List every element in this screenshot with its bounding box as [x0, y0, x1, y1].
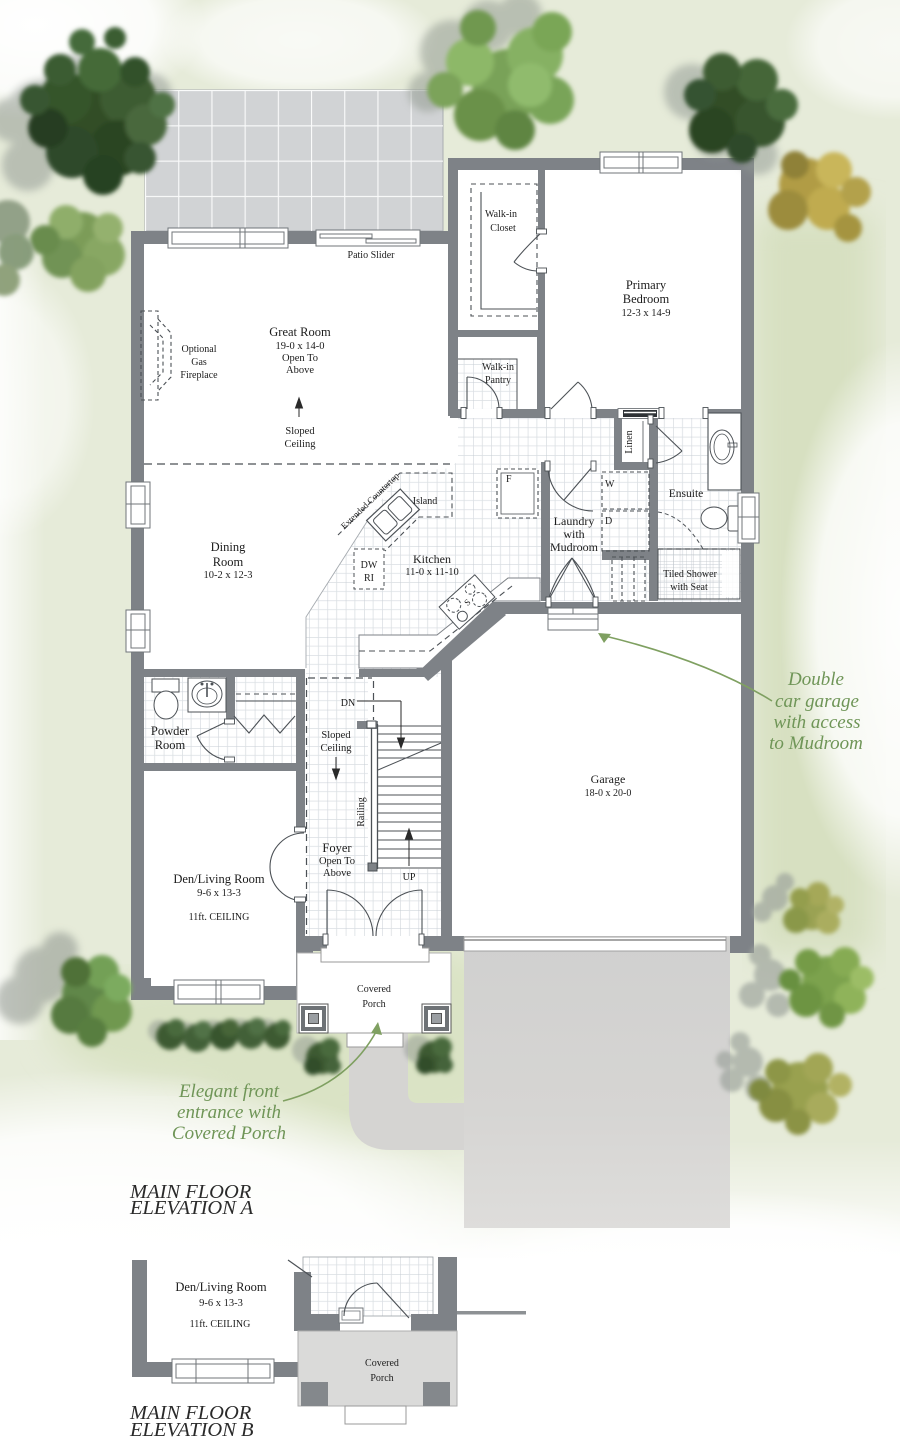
svg-text:11ft. CEILING: 11ft. CEILING: [190, 1319, 251, 1330]
svg-text:Ceiling: Ceiling: [285, 439, 317, 450]
svg-text:Railing: Railing: [356, 797, 367, 826]
svg-text:Walk-in: Walk-in: [485, 209, 517, 220]
svg-text:Den/Living Room: Den/Living Room: [173, 872, 265, 886]
svg-text:entrance with: entrance with: [177, 1102, 281, 1123]
svg-text:Room: Room: [155, 738, 186, 752]
svg-text:Powder: Powder: [151, 724, 190, 738]
svg-text:UP: UP: [403, 872, 416, 883]
svg-text:Sloped: Sloped: [321, 730, 351, 741]
svg-text:F: F: [506, 474, 512, 485]
svg-text:Ceiling: Ceiling: [321, 743, 353, 754]
svg-text:with access: with access: [773, 712, 860, 733]
svg-text:Dining: Dining: [211, 540, 246, 554]
svg-text:to Mudroom: to Mudroom: [769, 733, 863, 754]
svg-text:Mudroom: Mudroom: [550, 540, 599, 554]
svg-text:DW: DW: [361, 560, 378, 571]
svg-text:Fireplace: Fireplace: [180, 370, 218, 381]
svg-text:Above: Above: [323, 868, 351, 879]
svg-text:Den/Living Room: Den/Living Room: [175, 1280, 267, 1294]
svg-text:Above: Above: [286, 365, 314, 376]
svg-text:Patio Slider: Patio Slider: [348, 250, 396, 261]
svg-text:Primary: Primary: [626, 278, 667, 292]
svg-text:car garage: car garage: [775, 691, 859, 712]
svg-text:9-6 x 13-3: 9-6 x 13-3: [197, 888, 241, 899]
svg-text:Laundry: Laundry: [554, 514, 595, 528]
svg-text:Kitchen: Kitchen: [413, 552, 451, 566]
svg-text:with: with: [563, 527, 584, 541]
svg-text:Island: Island: [413, 496, 437, 507]
svg-text:Closet: Closet: [490, 223, 516, 234]
svg-text:Tiled Shower: Tiled Shower: [663, 569, 717, 580]
svg-text:Porch: Porch: [362, 999, 385, 1010]
svg-text:10-2 x 12-3: 10-2 x 12-3: [204, 570, 253, 581]
svg-text:Gas: Gas: [191, 357, 207, 368]
svg-text:9-6 x 13-3: 9-6 x 13-3: [199, 1298, 243, 1309]
svg-text:Bedroom: Bedroom: [623, 292, 670, 306]
svg-text:11ft. CEILING: 11ft. CEILING: [189, 912, 250, 923]
svg-text:Covered Porch: Covered Porch: [172, 1123, 286, 1144]
svg-text:Room: Room: [213, 555, 244, 569]
svg-text:12-3 x 14-9: 12-3 x 14-9: [622, 308, 671, 319]
svg-text:ELEVATION A: ELEVATION A: [129, 1197, 254, 1219]
svg-text:Walk-in: Walk-in: [482, 362, 514, 373]
svg-text:Open To: Open To: [282, 353, 318, 364]
svg-text:Garage: Garage: [591, 772, 626, 786]
svg-text:Foyer: Foyer: [322, 841, 352, 855]
svg-text:Linen: Linen: [624, 430, 635, 453]
svg-text:Great Room: Great Room: [269, 325, 331, 339]
svg-text:Covered: Covered: [357, 984, 391, 995]
svg-text:Pantry: Pantry: [485, 375, 511, 386]
svg-text:D: D: [605, 516, 612, 527]
svg-text:Optional: Optional: [182, 344, 217, 355]
svg-text:Double: Double: [787, 669, 844, 690]
svg-text:Elegant front: Elegant front: [178, 1081, 280, 1102]
svg-text:Open To: Open To: [319, 856, 355, 867]
svg-text:with Seat: with Seat: [670, 582, 708, 593]
svg-text:18-0 x 20-0: 18-0 x 20-0: [585, 788, 632, 799]
svg-text:Ensuite: Ensuite: [669, 488, 704, 500]
svg-text:Sloped: Sloped: [285, 426, 315, 437]
svg-text:19-0 x 14-0: 19-0 x 14-0: [276, 341, 325, 352]
svg-text:RI: RI: [364, 573, 374, 584]
svg-text:ELEVATION B: ELEVATION B: [129, 1419, 254, 1439]
svg-text:DN: DN: [341, 698, 355, 709]
svg-text:W: W: [605, 479, 615, 490]
svg-text:Porch: Porch: [370, 1373, 393, 1384]
svg-text:Covered: Covered: [365, 1358, 399, 1369]
svg-text:11-0 x 11-10: 11-0 x 11-10: [405, 567, 458, 578]
